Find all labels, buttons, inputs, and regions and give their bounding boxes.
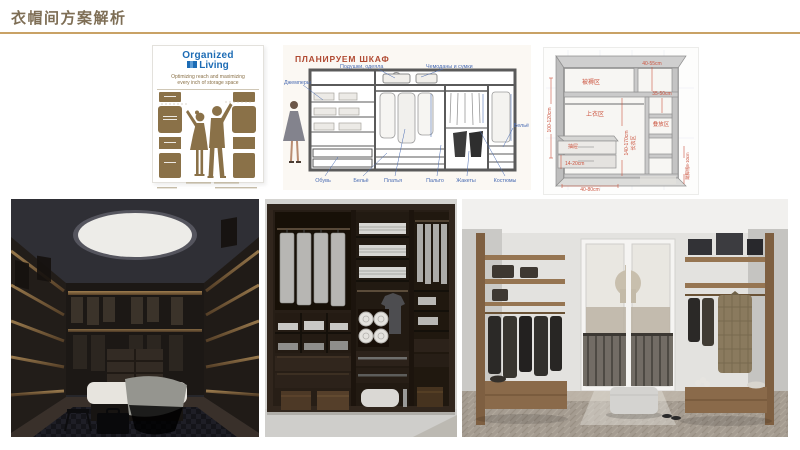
man-silhouette	[208, 103, 233, 178]
photo-wardrobe-system	[265, 199, 457, 437]
watermark	[640, 176, 676, 184]
garment-bags	[275, 212, 351, 310]
label-drawer: 抽屉	[568, 143, 578, 150]
label-long-zone: 长衣区	[630, 135, 637, 150]
label-stack-zone: 叠放区	[653, 120, 670, 128]
dim-drawer-height: 14-20cm	[565, 161, 584, 167]
right-storage-items	[232, 92, 256, 178]
photo-dark-walkin-closet	[11, 199, 259, 437]
label-sweaters: Джемперы	[284, 80, 311, 86]
label-jackets: Жакеты	[456, 178, 476, 184]
tagline-line2: every inch of storage space	[153, 80, 263, 86]
dim-long-height: 140-170cm	[624, 130, 630, 155]
woman-figure	[283, 101, 305, 163]
label-linen: Бельё	[353, 178, 368, 184]
label-bedding-zone: 被褥区	[582, 78, 600, 86]
brand-word-living: Living	[199, 60, 228, 71]
ottoman	[606, 387, 662, 419]
tagline: Optimizing reach and maximizing every in…	[153, 74, 263, 86]
balcony-window	[581, 239, 675, 391]
organized-living-logo: Organized Living	[153, 51, 263, 71]
reach-guide-lines	[161, 102, 253, 104]
cabinet-drawing	[310, 70, 515, 170]
cabinet	[267, 204, 455, 412]
label-coats: Пальто	[426, 178, 444, 184]
hanging-dark-clothes	[488, 316, 562, 378]
slide: 衣帽间方案解析 Organized Living Optimizing reac…	[0, 0, 800, 450]
left-storage-items	[158, 92, 182, 178]
label-tops-zone: 上衣区	[586, 110, 604, 118]
right-bay	[414, 212, 449, 407]
dim-base-height: 踢脚线8-10cm	[684, 152, 691, 180]
title-underline	[0, 32, 800, 34]
dim-left-height: 100-120cm	[547, 107, 553, 132]
brand-blocks-icon	[187, 61, 197, 68]
plaid-coat	[718, 291, 752, 373]
dimension-diagram: 被褥区 40-55cm 35-50cm 上衣区 叠放区 100-120cm 14…	[543, 47, 699, 195]
page-title: 衣帽间方案解析	[11, 7, 127, 28]
figure-caption-bars	[157, 182, 257, 188]
woman-silhouette	[186, 110, 208, 176]
window-mullion	[626, 244, 631, 386]
cabinet-shadow	[267, 412, 455, 415]
wardrobe-plan-diagram: ПЛАНИРУЕМ ШКАФ	[283, 45, 531, 190]
organized-living-infographic: Organized Living Optimizing reach and ma…	[152, 45, 264, 183]
folded-clothes-cubbies	[275, 313, 351, 353]
hat	[747, 382, 765, 389]
label-dresses: Платья	[384, 178, 402, 184]
dim-shelf-height: 35-50cm	[652, 91, 671, 97]
label-suits: Костюмы	[494, 178, 517, 184]
photo-bright-walkin-closet	[462, 199, 788, 437]
ceiling	[462, 199, 788, 237]
label-linen-right: Бельё	[514, 123, 529, 129]
label-shoes: Обувь	[315, 178, 331, 184]
skylight	[78, 213, 192, 257]
label-pillows: Подушки, одеяла	[340, 64, 383, 70]
reach-silhouettes-figure	[153, 90, 261, 190]
dim-top-height: 40-55cm	[642, 61, 661, 67]
brand-word-bottom: Living	[153, 61, 263, 71]
dim-bottom-width: 40-80cm	[580, 187, 599, 192]
label-suitcases: Чемоданы и сумки	[426, 64, 473, 70]
plan-title: ПЛАНИРУЕМ ШКАФ	[295, 54, 390, 64]
